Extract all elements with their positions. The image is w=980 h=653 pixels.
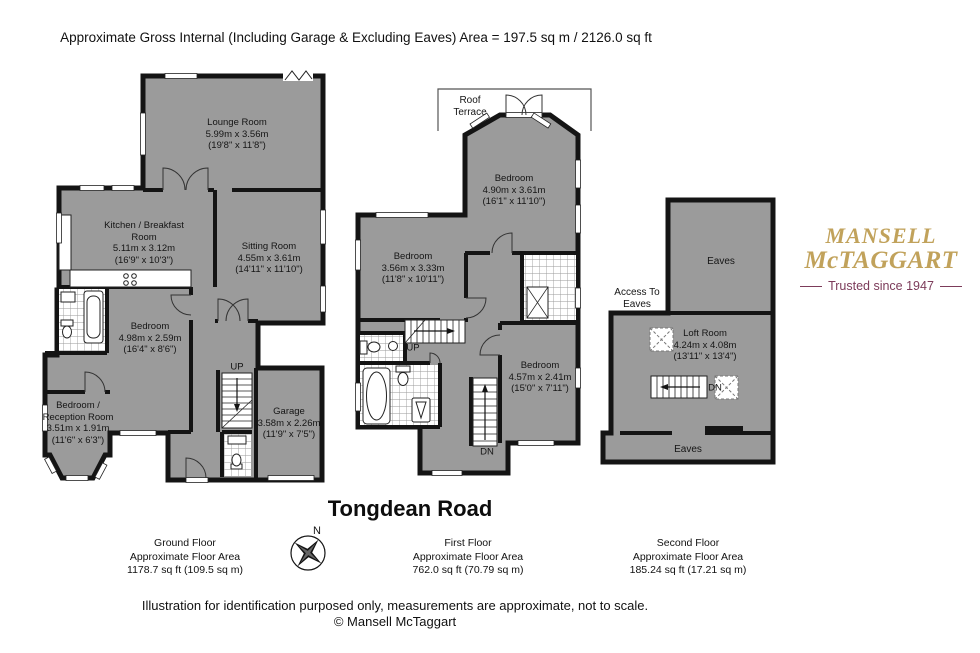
room-label-bedroom1-first: Bedroom 4.90m x 3.61m (16'1" x 11'10") [482,173,545,208]
room-metric: 3.56m x 3.33m [382,262,445,274]
area-summary: Approximate Gross Internal (Including Ga… [0,30,712,45]
compass-north-label: N [313,525,321,537]
floor-area-label: Approximate Floor Area [630,550,747,564]
room-name: Loft Room [673,328,736,340]
room-metric: 4.24m x 4.08m [673,339,736,351]
room-metric: 4.55m x 3.61m [235,252,303,264]
room-imperial: (19'8" x 11'8") [206,140,269,152]
room-imperial: (13'11" x 13'4") [673,351,736,363]
room-metric: 3.58m x 2.26m [258,417,321,429]
room-name: Bedroom [509,360,572,372]
room-label-sitting: Sitting Room 4.55m x 3.61m (14'11" x 11'… [235,241,303,276]
room-name: Bedroom [382,251,445,263]
room-metric: 3.51m x 1.91m [34,423,122,435]
disclaimer-text: Illustration for identification purposed… [0,598,790,613]
room-label-reception: Bedroom / Reception Room 3.51m x 1.91m (… [34,400,122,446]
room-label-bedroom-ground: Bedroom 4.98m x 2.59m (16'4" x 8'6") [119,321,182,356]
room-label-lounge: Lounge Room 5.99m x 3.56m (19'8" x 11'8"… [206,117,269,152]
stairs-dn-label-first: DN [480,447,494,458]
caption-ground-floor: Ground Floor Approximate Floor Area 1178… [127,537,243,578]
room-imperial: (11'9" x 7'5") [258,429,321,441]
tagline-text: Trusted since 1947 [828,279,934,293]
floor-area-label: Approximate Floor Area [413,550,524,564]
room-label-kitchen: Kitchen / Breakfast Room 5.11m x 3.12m (… [97,220,192,266]
caption-second-floor: Second Floor Approximate Floor Area 185.… [630,537,747,578]
floor-name: First Floor [413,537,524,551]
floor-name: Ground Floor [127,537,243,551]
room-metric: 5.99m x 3.56m [206,128,269,140]
eaves-bottom-label: Eaves [674,444,702,456]
room-imperial: (16'4" x 8'6") [119,344,182,356]
floorplan-page: { "header": { "area_summary": "Approxima… [0,0,980,653]
room-label-garage: Garage 3.58m x 2.26m (11'9" x 7'5") [258,406,321,441]
caption-first-floor: First Floor Approximate Floor Area 762.0… [413,537,524,578]
room-name: Sitting Room [235,241,303,253]
ground-stairs [222,373,252,428]
agency-logo: MANSELL McTAGGART Trusted since 1947 [792,224,970,293]
room-imperial: (16'1" x 11'10") [482,196,545,208]
floor-name: Second Floor [630,537,747,551]
room-name: Bedroom [119,321,182,333]
floor-area-value: 1178.7 sq ft (109.5 sq m) [127,564,243,578]
logo-name-line2: McTAGGART [792,248,970,274]
room-name: Garage [258,406,321,418]
room-label-loft: Loft Room 4.24m x 4.08m (13'11" x 13'4") [673,328,736,363]
compass-icon [284,529,332,577]
room-metric: 4.57m x 2.41m [509,371,572,383]
room-label-bedroom2-first: Bedroom 3.56m x 3.33m (11'8" x 10'11") [382,251,445,286]
room-metric: 4.98m x 2.59m [119,332,182,344]
room-name: Bedroom [482,173,545,185]
roof-terrace-label: Roof Terrace [444,95,496,119]
first-stairs-up [405,320,465,343]
room-metric: 5.11m x 3.12m [97,243,192,255]
eaves-top-label: Eaves [707,256,735,268]
room-label-bedroom3-first: Bedroom 4.57m x 2.41m (15'0" x 7'11") [509,360,572,395]
first-stairs-down [473,378,497,446]
second-stairs [651,376,707,398]
logo-name-line1: MANSELL [792,224,970,248]
room-imperial: (15'0" x 7'11") [509,383,572,395]
room-name: Kitchen / Breakfast Room [97,220,192,243]
page-title: Tongdean Road [328,496,493,522]
room-name: Lounge Room [206,117,269,129]
floor-area-value: 185.24 sq ft (17.21 sq m) [630,564,747,578]
room-metric: 4.90m x 3.61m [482,184,545,196]
access-to-eaves-label: Access To Eaves [605,287,669,311]
room-imperial: (11'6" x 6'3") [34,435,122,447]
tagline-dash-left [800,286,822,287]
floor-area-value: 762.0 sq ft (70.79 sq m) [413,564,524,578]
room-imperial: (16'9" x 10'3") [97,255,192,267]
stairs-dn-label-second: DN [708,383,722,394]
tagline-dash-right [940,286,962,287]
stairs-up-label-first: UP [406,343,419,354]
copyright-text: © Mansell McTaggart [0,614,790,629]
room-name: Bedroom / Reception Room [34,400,122,423]
room-imperial: (11'8" x 10'11") [382,274,445,286]
logo-tagline: Trusted since 1947 [792,279,970,293]
room-imperial: (14'11" x 11'10") [235,264,303,276]
floor-area-label: Approximate Floor Area [127,550,243,564]
stairs-up-label-ground: UP [230,362,243,373]
